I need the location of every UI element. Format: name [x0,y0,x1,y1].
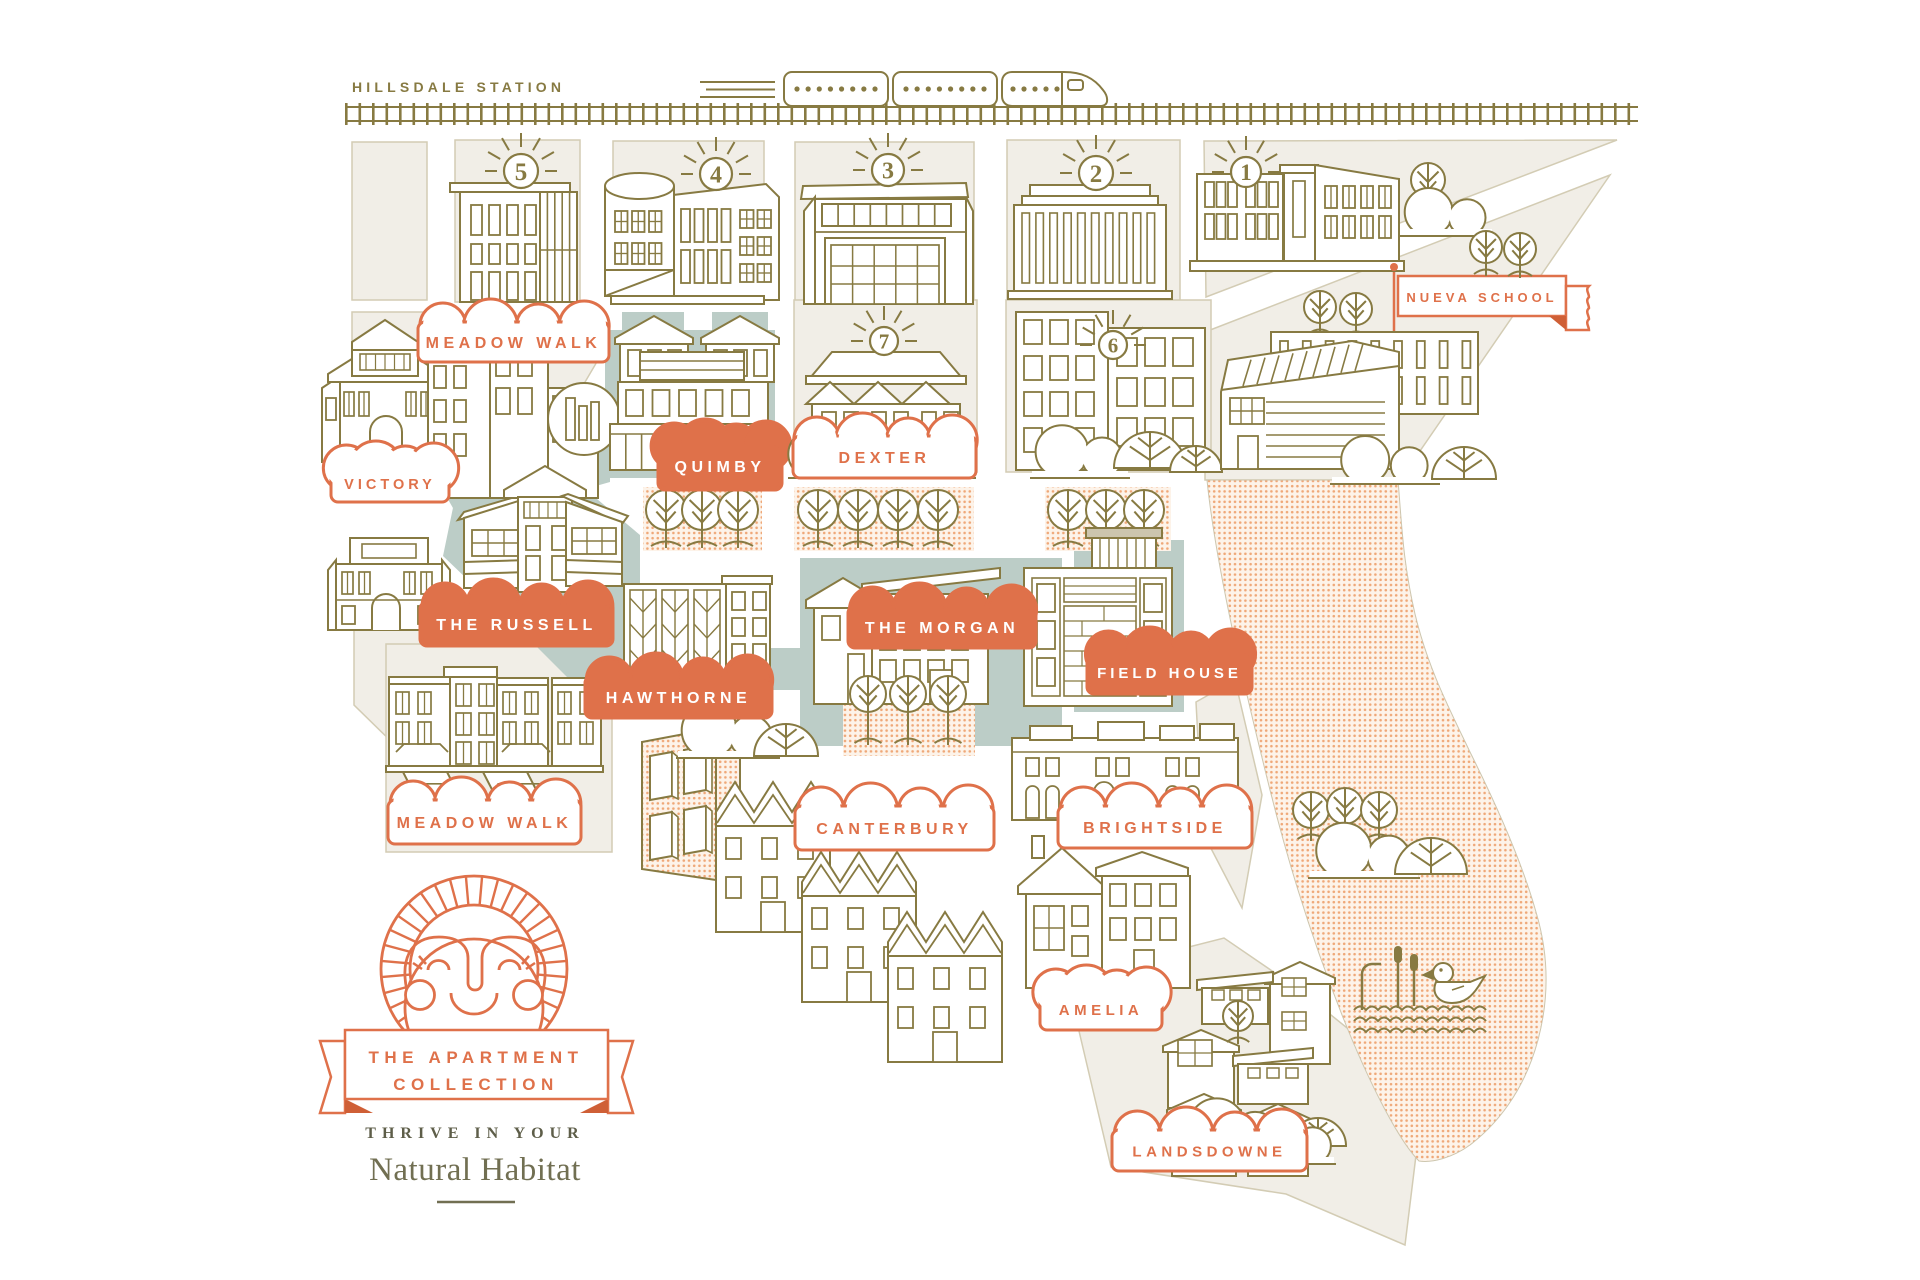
svg-text:HAWTHORNE: HAWTHORNE [606,690,751,707]
svg-text:FIELD HOUSE: FIELD HOUSE [1097,665,1242,682]
svg-text:VICTORY: VICTORY [344,477,436,493]
svg-text:QUIMBY: QUIMBY [675,459,766,476]
svg-text:3: 3 [882,158,894,184]
svg-text:THRIVE IN YOUR: THRIVE IN YOUR [365,1125,584,1142]
svg-text:THE RUSSELL: THE RUSSELL [436,617,597,634]
svg-text:THE APARTMENT: THE APARTMENT [368,1048,583,1067]
svg-text:6: 6 [1108,333,1119,357]
svg-text:MEADOW WALK: MEADOW WALK [397,815,573,832]
svg-text:1: 1 [1240,160,1252,185]
svg-text:7: 7 [879,329,890,353]
svg-text:2: 2 [1090,161,1103,188]
svg-text:HILLSDALE STATION: HILLSDALE STATION [352,79,565,95]
svg-text:CANTERBURY: CANTERBURY [816,821,972,838]
svg-text:THE MORGAN: THE MORGAN [865,620,1019,637]
svg-text:5: 5 [515,159,528,186]
svg-text:Natural Habitat: Natural Habitat [369,1152,581,1188]
svg-text:DEXTER: DEXTER [839,450,931,467]
svg-text:MEADOW WALK: MEADOW WALK [426,335,602,352]
svg-text:LANDSDOWNE: LANDSDOWNE [1132,1144,1286,1161]
svg-text:4: 4 [710,162,722,188]
svg-text:COLLECTION: COLLECTION [393,1075,559,1094]
svg-text:NUEVA SCHOOL: NUEVA SCHOOL [1406,290,1557,305]
svg-text:AMELIA: AMELIA [1059,1002,1144,1019]
svg-text:BRIGHTSIDE: BRIGHTSIDE [1083,820,1227,837]
